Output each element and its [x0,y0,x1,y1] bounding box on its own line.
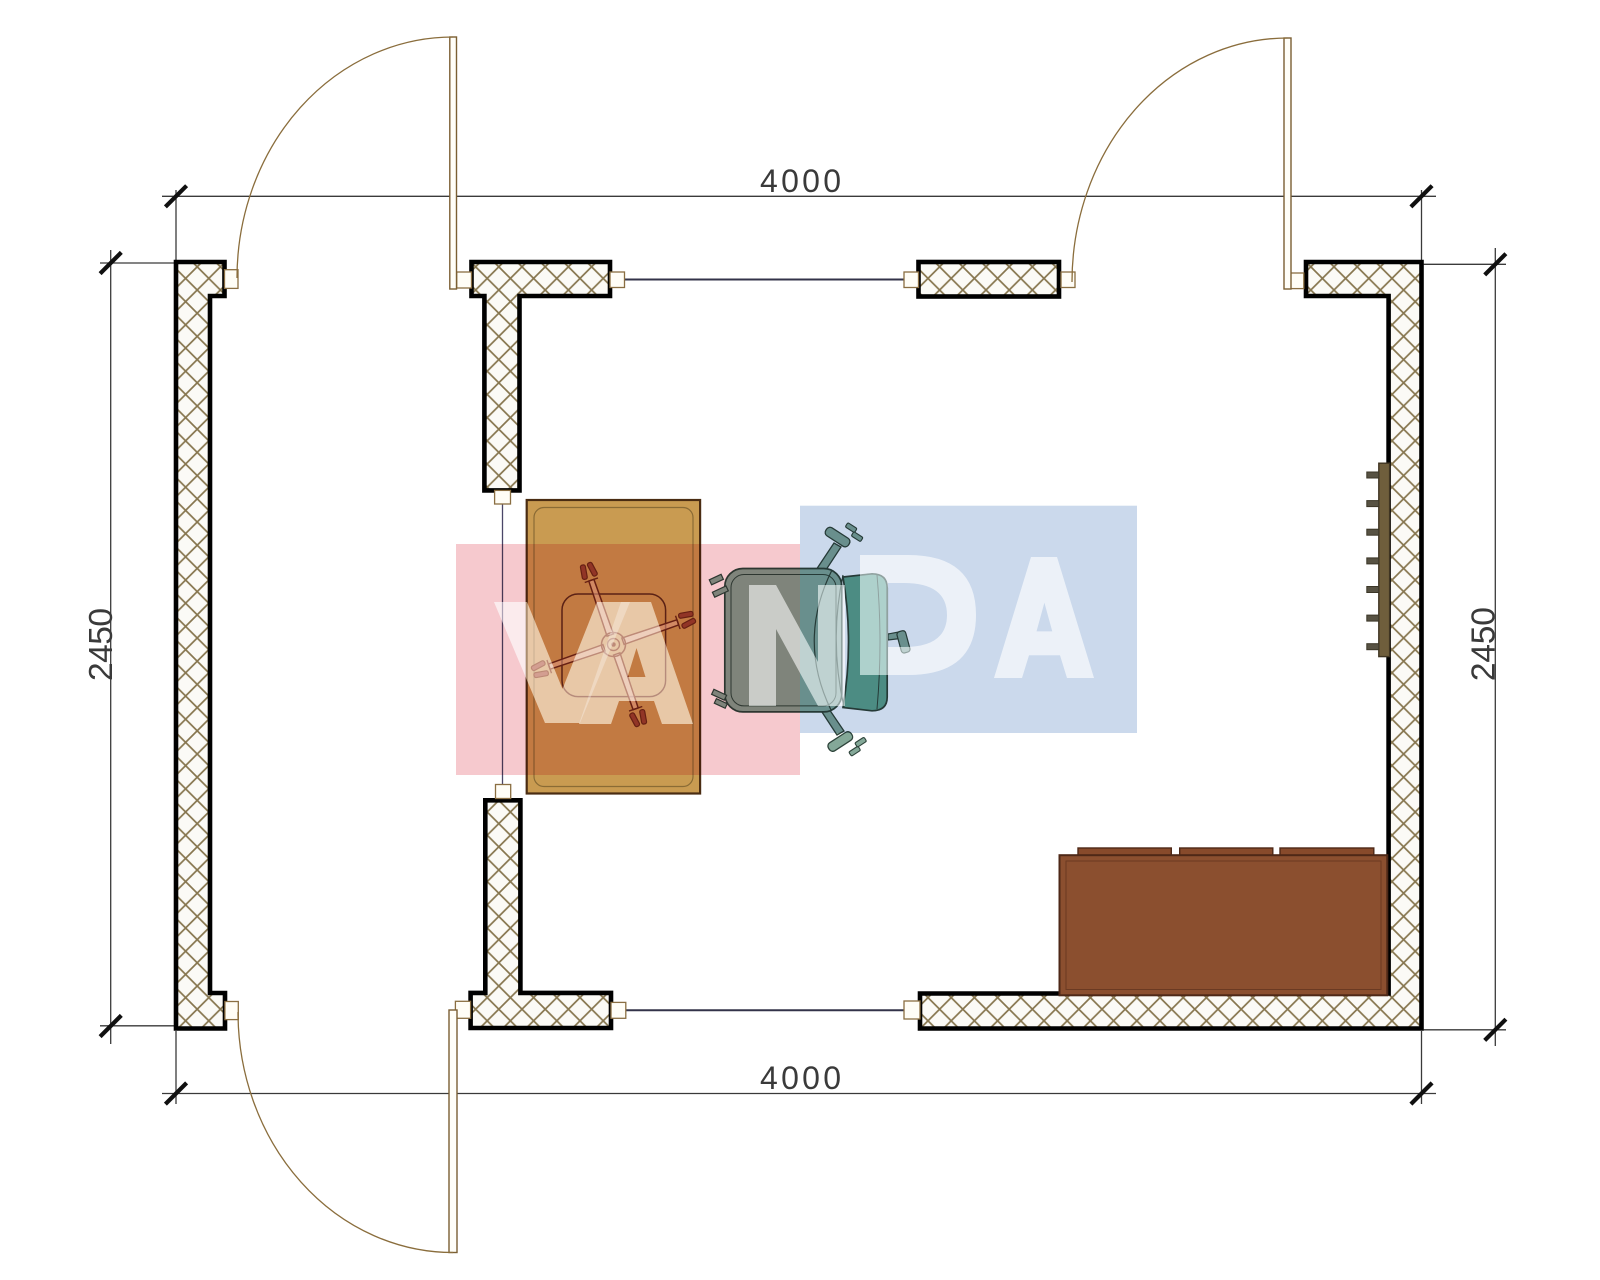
svg-text:4000: 4000 [760,1060,841,1096]
svg-text:2450: 2450 [1466,607,1503,681]
svg-text:4000: 4000 [760,163,841,199]
svg-text:2450: 2450 [83,608,120,681]
